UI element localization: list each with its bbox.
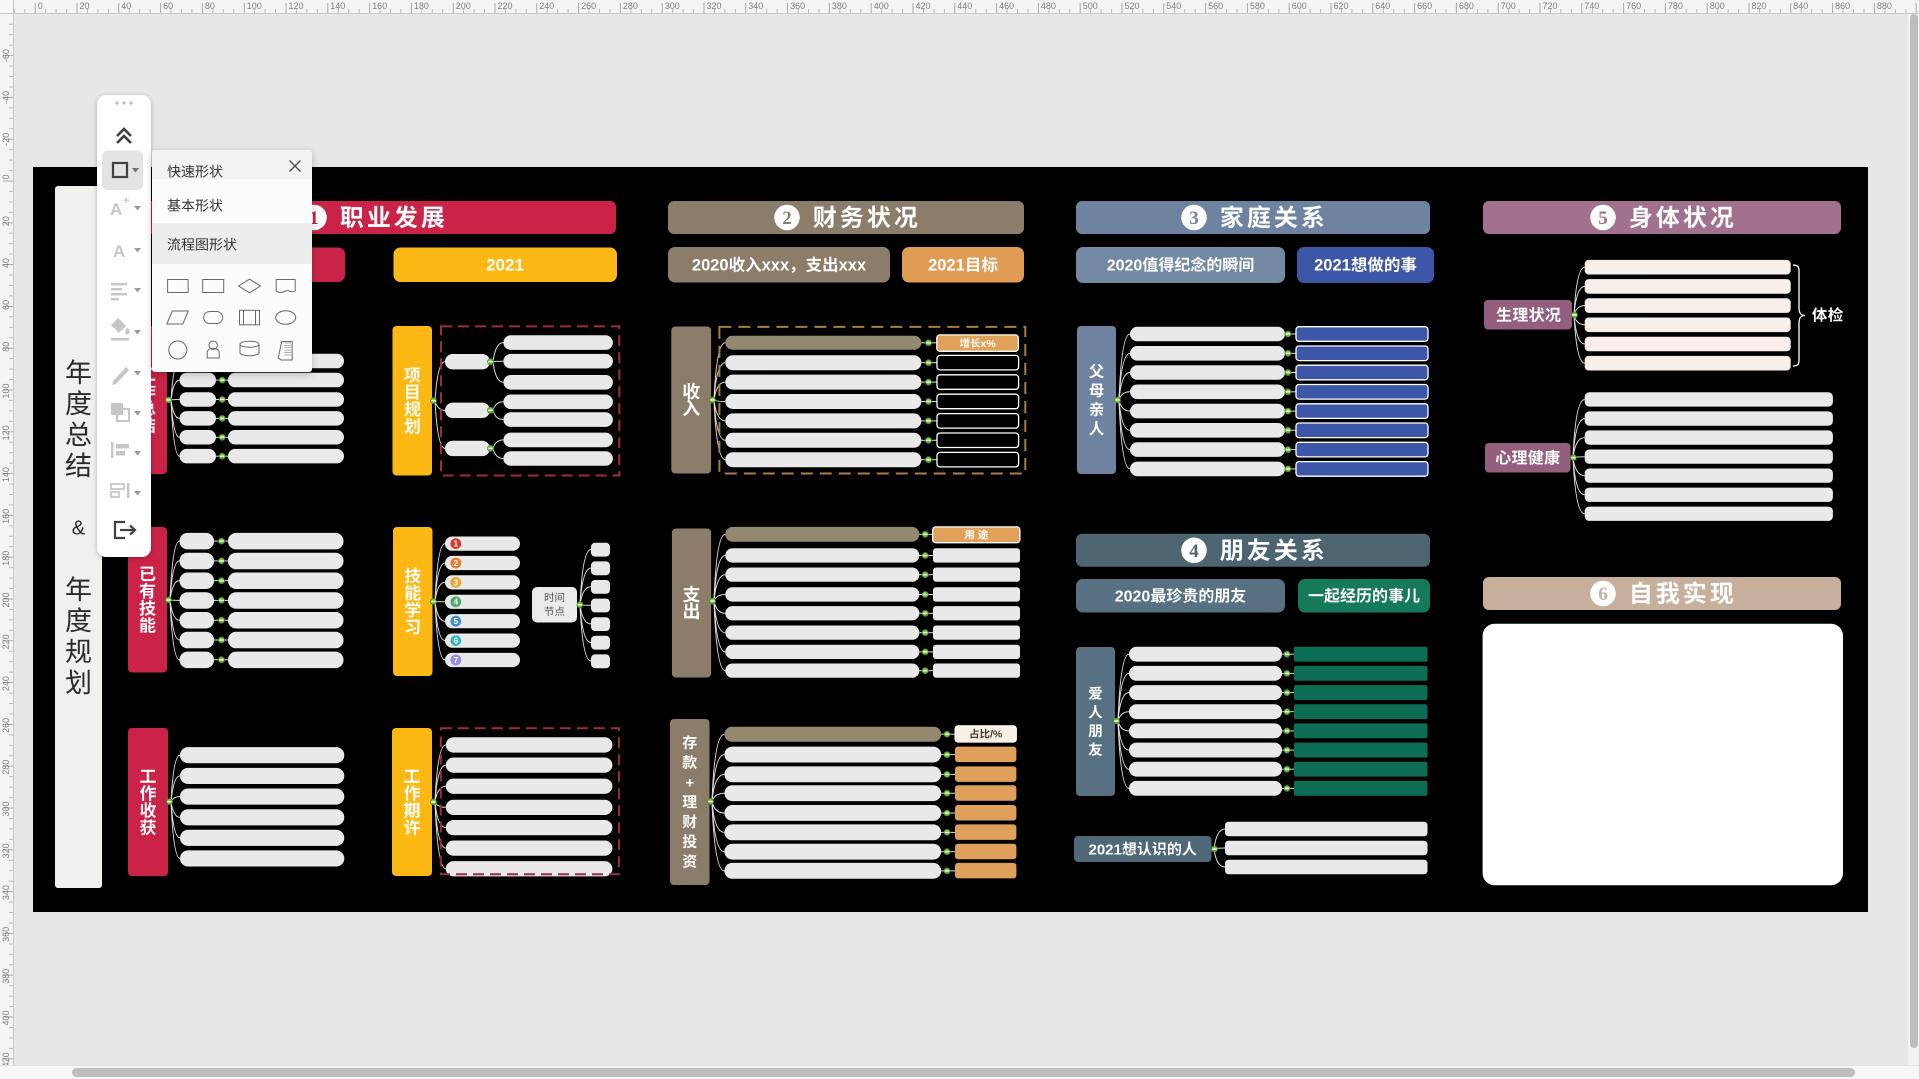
svg-text:120: 120 bbox=[1, 425, 11, 440]
svg-text:160: 160 bbox=[1, 509, 11, 524]
svg-text:xxx: xxx bbox=[762, 257, 790, 275]
svg-text:280: 280 bbox=[1, 760, 11, 775]
svg-text:400: 400 bbox=[1, 1011, 11, 1026]
svg-text:3: 3 bbox=[1189, 208, 1199, 229]
svg-text:0: 0 bbox=[38, 1, 43, 11]
svg-text:/%: /% bbox=[990, 729, 1003, 741]
svg-text:120: 120 bbox=[289, 1, 304, 11]
svg-text:+: + bbox=[123, 195, 129, 207]
svg-text:200: 200 bbox=[456, 1, 471, 11]
svg-text:660: 660 bbox=[1417, 1, 1432, 11]
svg-text:620: 620 bbox=[1334, 1, 1349, 11]
svg-text:800: 800 bbox=[1710, 1, 1725, 11]
svg-text:2021: 2021 bbox=[1089, 841, 1122, 858]
svg-text:780: 780 bbox=[1668, 1, 1683, 11]
svg-text:xxx: xxx bbox=[839, 257, 867, 275]
svg-text:220: 220 bbox=[1, 634, 11, 649]
svg-text:5: 5 bbox=[1598, 208, 1608, 229]
svg-text:2020: 2020 bbox=[1115, 588, 1151, 605]
svg-text:140: 140 bbox=[1, 467, 11, 482]
svg-text:320: 320 bbox=[1, 843, 11, 858]
svg-text:2021: 2021 bbox=[486, 256, 524, 275]
svg-text:300: 300 bbox=[665, 1, 680, 11]
svg-text:-60: -60 bbox=[1, 49, 11, 62]
svg-text:880: 880 bbox=[1877, 1, 1892, 11]
svg-text:20: 20 bbox=[1, 216, 11, 226]
svg-text:640: 640 bbox=[1375, 1, 1390, 11]
svg-text:-40: -40 bbox=[1, 91, 11, 104]
svg-text:100: 100 bbox=[1, 384, 11, 399]
svg-text:80: 80 bbox=[205, 1, 215, 11]
svg-text:820: 820 bbox=[1752, 1, 1767, 11]
svg-text:+: + bbox=[685, 775, 694, 792]
svg-text:440: 440 bbox=[957, 1, 972, 11]
svg-text:1: 1 bbox=[454, 540, 459, 549]
svg-text:500: 500 bbox=[1083, 1, 1098, 11]
svg-text:60: 60 bbox=[163, 1, 173, 11]
svg-text:840: 840 bbox=[1793, 1, 1808, 11]
svg-text:600: 600 bbox=[1292, 1, 1307, 11]
svg-text:240: 240 bbox=[1, 676, 11, 691]
svg-text:860: 860 bbox=[1835, 1, 1850, 11]
svg-text:160: 160 bbox=[372, 1, 387, 11]
svg-text:360: 360 bbox=[790, 1, 805, 11]
svg-text:720: 720 bbox=[1543, 1, 1558, 11]
svg-text:2021: 2021 bbox=[928, 257, 965, 275]
svg-text:6: 6 bbox=[1598, 584, 1608, 605]
svg-text:380: 380 bbox=[832, 1, 847, 11]
svg-text:560: 560 bbox=[1208, 1, 1223, 11]
svg-text:200: 200 bbox=[1, 593, 11, 608]
svg-text:220: 220 bbox=[498, 1, 513, 11]
svg-text:300: 300 bbox=[1, 802, 11, 817]
svg-text:580: 580 bbox=[1250, 1, 1265, 11]
svg-text:700: 700 bbox=[1501, 1, 1516, 11]
svg-text:380: 380 bbox=[1, 969, 11, 984]
svg-text:540: 540 bbox=[1166, 1, 1181, 11]
svg-text:180: 180 bbox=[414, 1, 429, 11]
svg-text:280: 280 bbox=[623, 1, 638, 11]
svg-text:2021: 2021 bbox=[1314, 257, 1351, 275]
svg-text:260: 260 bbox=[1, 718, 11, 733]
svg-text:320: 320 bbox=[707, 1, 722, 11]
svg-text:A: A bbox=[110, 200, 122, 219]
svg-text:A: A bbox=[113, 242, 125, 261]
svg-text:4: 4 bbox=[454, 598, 459, 607]
svg-text:460: 460 bbox=[999, 1, 1014, 11]
svg-text:480: 480 bbox=[1041, 1, 1056, 11]
svg-text:180: 180 bbox=[1, 551, 11, 566]
svg-text:60: 60 bbox=[1, 300, 11, 310]
svg-text:20: 20 bbox=[80, 1, 90, 11]
svg-text:-20: -20 bbox=[1, 133, 11, 146]
svg-text:240: 240 bbox=[539, 1, 554, 11]
svg-text:2020: 2020 bbox=[692, 257, 729, 275]
svg-text:340: 340 bbox=[1, 885, 11, 900]
svg-text:40: 40 bbox=[1, 258, 11, 268]
svg-text:6: 6 bbox=[454, 637, 459, 646]
svg-text:340: 340 bbox=[748, 1, 763, 11]
svg-text:400: 400 bbox=[874, 1, 889, 11]
svg-text:80: 80 bbox=[1, 342, 11, 352]
svg-text:0: 0 bbox=[1, 175, 11, 180]
svg-text:3: 3 bbox=[454, 578, 459, 587]
svg-text:260: 260 bbox=[581, 1, 596, 11]
svg-text:2: 2 bbox=[454, 559, 459, 568]
svg-text:40: 40 bbox=[121, 1, 131, 11]
svg-text:x%: x% bbox=[981, 338, 997, 350]
svg-text:740: 740 bbox=[1584, 1, 1599, 11]
svg-text:360: 360 bbox=[1, 927, 11, 942]
svg-text:520: 520 bbox=[1125, 1, 1140, 11]
svg-text:2020: 2020 bbox=[1107, 258, 1143, 275]
svg-text:760: 760 bbox=[1626, 1, 1641, 11]
svg-text:140: 140 bbox=[330, 1, 345, 11]
svg-text:100: 100 bbox=[247, 1, 262, 11]
svg-text:680: 680 bbox=[1459, 1, 1474, 11]
svg-text:&: & bbox=[72, 518, 86, 540]
svg-text:420: 420 bbox=[916, 1, 931, 11]
svg-text:5: 5 bbox=[454, 617, 459, 626]
svg-text:7: 7 bbox=[454, 656, 459, 665]
svg-text:4: 4 bbox=[1189, 541, 1199, 562]
svg-text:2: 2 bbox=[782, 208, 792, 229]
